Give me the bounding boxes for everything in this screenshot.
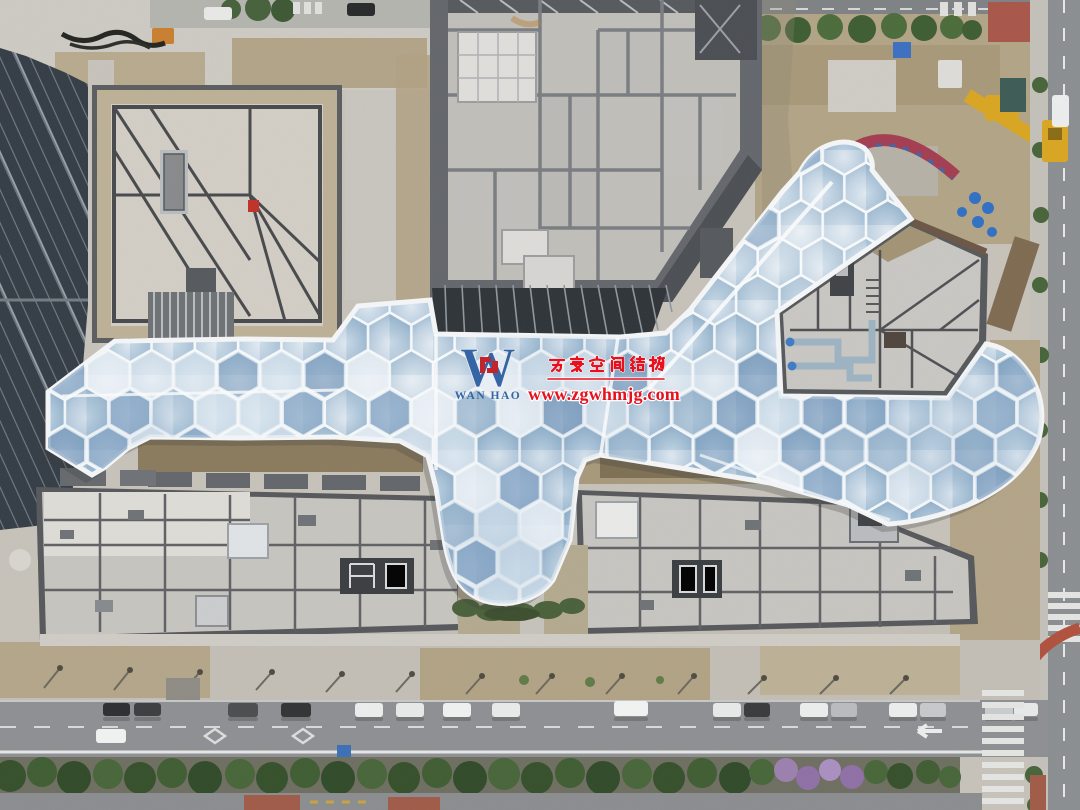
svg-text:WAN HAO: WAN HAO [455, 390, 521, 402]
svg-text:www.zgwhmjg.com: www.zgwhmjg.com [528, 384, 680, 404]
